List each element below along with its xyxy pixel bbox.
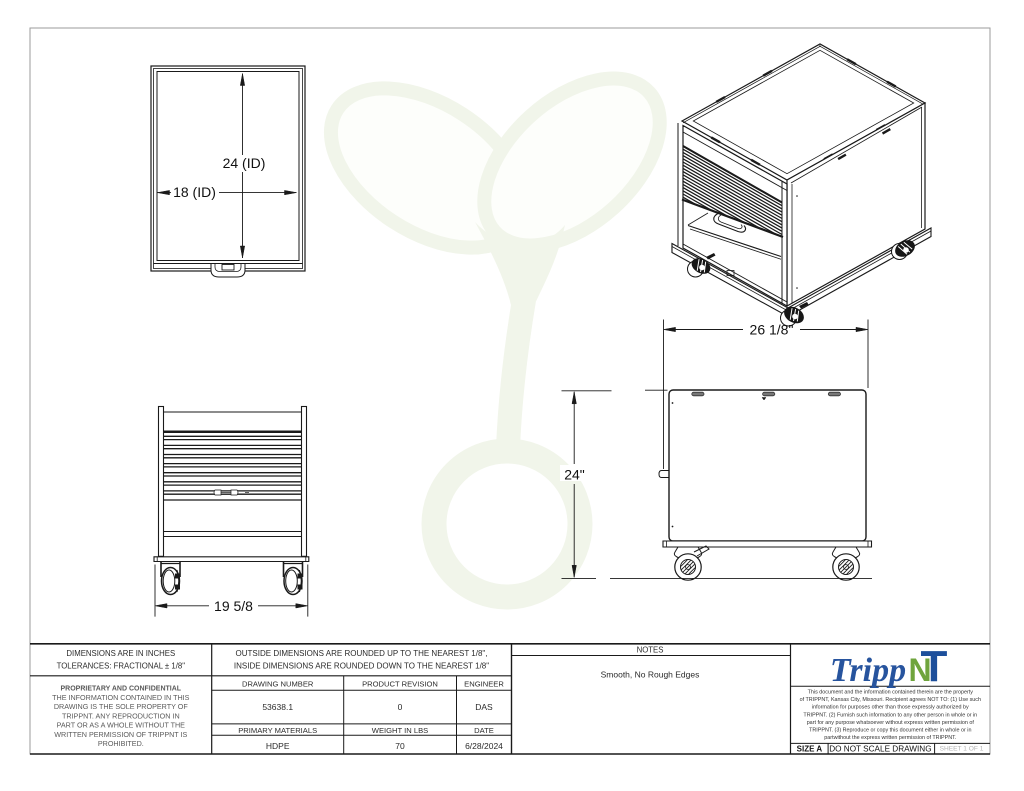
svg-text:53638.1: 53638.1 (262, 702, 293, 712)
svg-text:SIZE A: SIZE A (797, 745, 823, 754)
svg-text:partwithout the express writte: partwithout the express written permissi… (824, 735, 956, 741)
svg-text:This document and the informat: This document and the information contai… (808, 690, 974, 696)
svg-text:TRIPPNT. ANY REPRODUCTION IN: TRIPPNT. ANY REPRODUCTION IN (62, 711, 180, 720)
svg-text:70: 70 (395, 741, 405, 751)
svg-text:TOLERANCES: FRACTIONAL ± 1/8": TOLERANCES: FRACTIONAL ± 1/8" (57, 662, 186, 671)
svg-text:WRITTEN PERMISSION OF TRIPPNT: WRITTEN PERMISSION OF TRIPPNT IS (54, 730, 187, 739)
svg-text:PROPRIETARY AND CONFIDENTIAL: PROPRIETARY AND CONFIDENTIAL (61, 686, 182, 693)
svg-text:18 (ID): 18 (ID) (173, 184, 216, 200)
svg-text:DRAWING NUMBER: DRAWING NUMBER (242, 680, 314, 689)
svg-text:information for purposes other: information for purposes other than thos… (812, 705, 969, 711)
svg-text:OUTSIDE DIMENSIONS ARE ROUNDED: OUTSIDE DIMENSIONS ARE ROUNDED UP TO THE… (236, 649, 488, 658)
svg-text:TRIPPNT. (2) Furnish such info: TRIPPNT. (2) Furnish such information to… (803, 712, 977, 718)
svg-text:PRIMARY MATERIALS: PRIMARY MATERIALS (238, 726, 317, 735)
svg-text:DIMENSIONS ARE IN INCHES: DIMENSIONS ARE IN INCHES (66, 649, 175, 658)
svg-text:WEIGHT IN LBS: WEIGHT IN LBS (372, 726, 428, 735)
svg-text:Smooth, No Rough Edges: Smooth, No Rough Edges (601, 670, 700, 680)
svg-text:26 1/8": 26 1/8" (750, 321, 794, 337)
svg-text:THE INFORMATION CONTAINED IN T: THE INFORMATION CONTAINED IN THIS (52, 693, 190, 702)
svg-text:INSIDE DIMENSIONS ARE ROUNDED: INSIDE DIMENSIONS ARE ROUNDED DOWN TO TH… (234, 662, 489, 671)
svg-text:DAS: DAS (475, 702, 493, 712)
svg-text:PART OR AS A WHOLE WITHOUT THE: PART OR AS A WHOLE WITHOUT THE (57, 721, 186, 730)
svg-text:part for any purpose whatsoeve: part for any purpose whatsoever without … (807, 720, 975, 726)
svg-text:19 5/8: 19 5/8 (214, 598, 253, 614)
svg-text:PROHIBITED.: PROHIBITED. (98, 739, 144, 748)
svg-text:0: 0 (398, 702, 403, 712)
svg-text:ENGINEER: ENGINEER (464, 680, 504, 689)
svg-text:DRAWING IS THE SOLE PROPERTY O: DRAWING IS THE SOLE PROPERTY OF (54, 702, 189, 711)
svg-text:HDPE: HDPE (266, 741, 290, 751)
svg-text:TRIPPNT. (3) Reproduce or copy: TRIPPNT. (3) Reproduce or copy this docu… (809, 728, 971, 734)
svg-text:DO NOT SCALE DRAWING: DO NOT SCALE DRAWING (829, 745, 931, 754)
svg-text:Tripp: Tripp (830, 652, 906, 689)
svg-text:PRODUCT REVISION: PRODUCT REVISION (362, 680, 438, 689)
svg-text:6/28/2024: 6/28/2024 (465, 741, 503, 751)
svg-text:NOTES: NOTES (637, 646, 664, 655)
svg-text:24": 24" (564, 467, 585, 483)
svg-text:SHEET 1 OF 1: SHEET 1 OF 1 (940, 746, 984, 753)
svg-text:DATE: DATE (474, 726, 494, 735)
svg-text:T: T (921, 642, 948, 691)
svg-text:of TRIPPNT, Kansas City, Misso: of TRIPPNT, Kansas City, Missouri. Recip… (800, 697, 981, 703)
svg-text:24 (ID): 24 (ID) (223, 155, 266, 171)
